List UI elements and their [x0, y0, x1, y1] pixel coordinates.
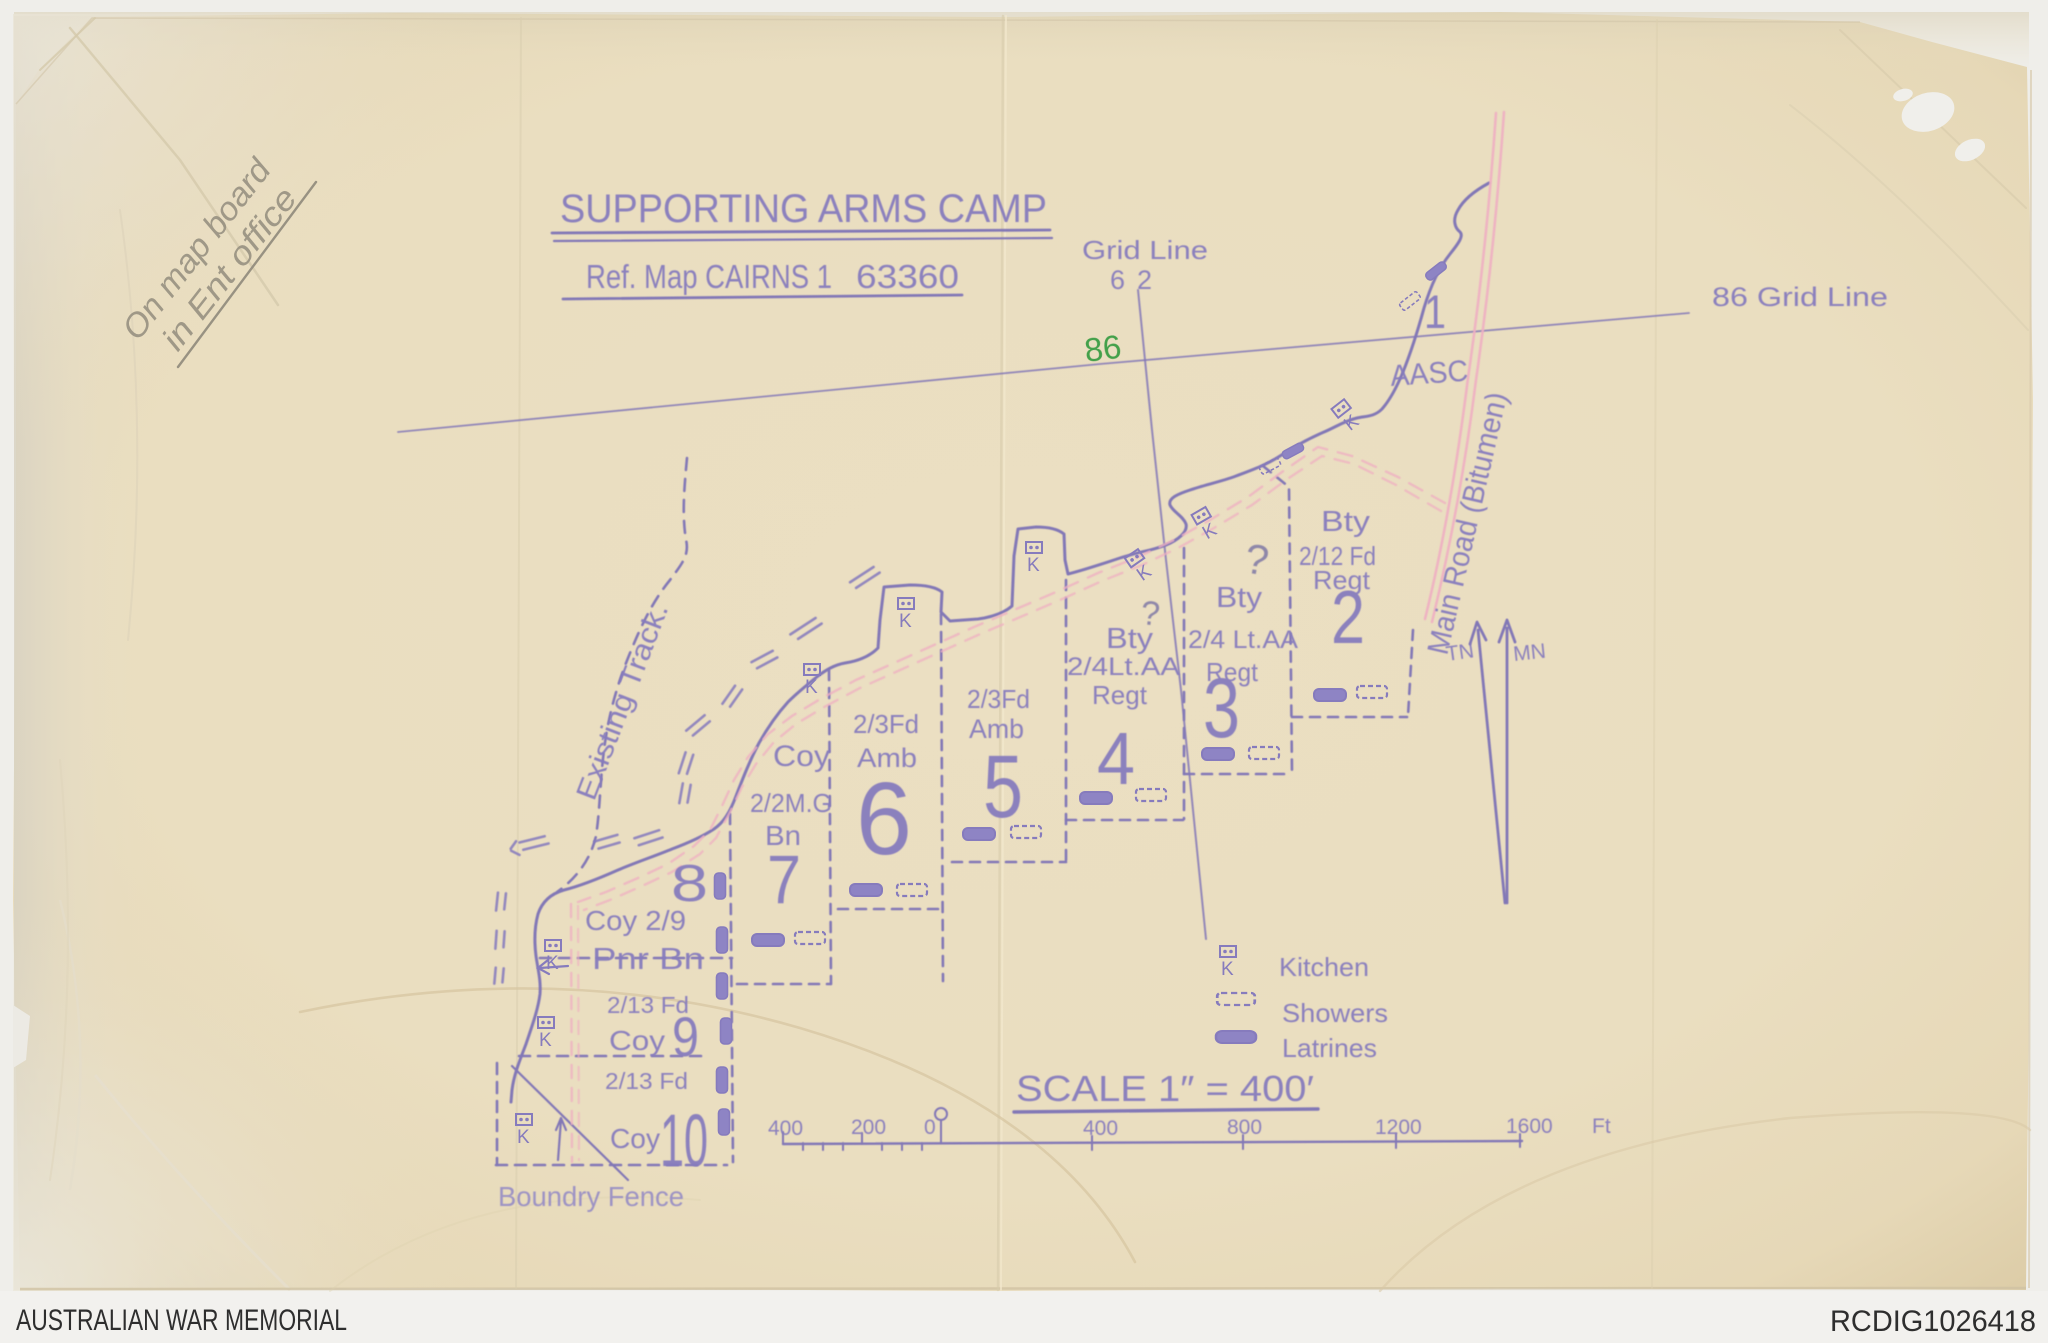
svg-text:2/3Fd: 2/3Fd	[853, 709, 919, 739]
svg-text:9: 9	[672, 1005, 699, 1068]
svg-text:Grid Line: Grid Line	[1082, 235, 1208, 265]
svg-text:2/4 Lt.AA: 2/4 Lt.AA	[1188, 626, 1298, 654]
svg-text:63360: 63360	[856, 258, 959, 295]
svg-text:AUSTRALIAN WAR MEMORIAL: AUSTRALIAN WAR MEMORIAL	[16, 1304, 347, 1337]
svg-text:AASC: AASC	[1389, 355, 1469, 393]
svg-text:Coy 2/9: Coy 2/9	[585, 905, 686, 936]
svg-text:Kitchen: Kitchen	[1279, 952, 1369, 982]
svg-text:Latrines: Latrines	[1282, 1033, 1377, 1063]
svg-text:3: 3	[1203, 661, 1240, 755]
svg-text:?: ?	[1139, 594, 1161, 634]
svg-text:2/4Lt.AA: 2/4Lt.AA	[1067, 653, 1180, 681]
svg-text:Showers: Showers	[1282, 998, 1388, 1028]
svg-text:10: 10	[660, 1099, 708, 1182]
svg-text:MN: MN	[1512, 640, 1547, 666]
svg-text:2/13 Fd: 2/13 Fd	[605, 1068, 688, 1094]
svg-text:6: 6	[1110, 265, 1125, 295]
svg-text:Coy: Coy	[773, 740, 830, 773]
svg-text:6: 6	[856, 761, 912, 876]
svg-text:1200: 1200	[1375, 1116, 1422, 1139]
svg-text:7: 7	[767, 841, 801, 918]
svg-text:Ref. Map CAIRNS 1: Ref. Map CAIRNS 1	[586, 258, 832, 295]
svg-text:200: 200	[851, 1116, 886, 1139]
svg-text:5: 5	[983, 736, 1023, 836]
svg-text:Boundry Fence: Boundry Fence	[498, 1181, 684, 1212]
svg-text:SCALE 1″ = 400′: SCALE 1″ = 400′	[1016, 1068, 1314, 1109]
svg-text:Coy: Coy	[610, 1123, 660, 1154]
svg-text:RCDIG1026418: RCDIG1026418	[1830, 1305, 2036, 1338]
svg-text:800: 800	[1227, 1116, 1262, 1139]
svg-text:Coy: Coy	[609, 1025, 665, 1056]
svg-text:0: 0	[924, 1116, 936, 1139]
svg-text:2/3Fd: 2/3Fd	[967, 684, 1030, 714]
svg-text:SUPPORTING ARMS CAMP: SUPPORTING ARMS CAMP	[560, 187, 1047, 231]
svg-text:2/2M.G: 2/2M.G	[750, 788, 832, 818]
svg-text:86 Grid Line: 86 Grid Line	[1712, 282, 1888, 312]
svg-text:Pnr Bn: Pnr Bn	[592, 941, 704, 976]
svg-text:Bty: Bty	[1216, 582, 1263, 614]
svg-text:2: 2	[1331, 575, 1365, 659]
svg-text:2: 2	[1137, 265, 1152, 295]
svg-text:400: 400	[1083, 1117, 1118, 1140]
svg-text:Regt: Regt	[1092, 680, 1148, 710]
svg-text:86: 86	[1082, 328, 1123, 369]
svg-text:Ft: Ft	[1592, 1115, 1611, 1138]
svg-text:1: 1	[1424, 285, 1446, 338]
svg-text:TN: TN	[1444, 639, 1475, 666]
svg-text:4: 4	[1097, 717, 1135, 800]
svg-text:400: 400	[768, 1117, 803, 1140]
svg-text:1600: 1600	[1506, 1115, 1553, 1138]
svg-text:Bty: Bty	[1321, 506, 1371, 538]
